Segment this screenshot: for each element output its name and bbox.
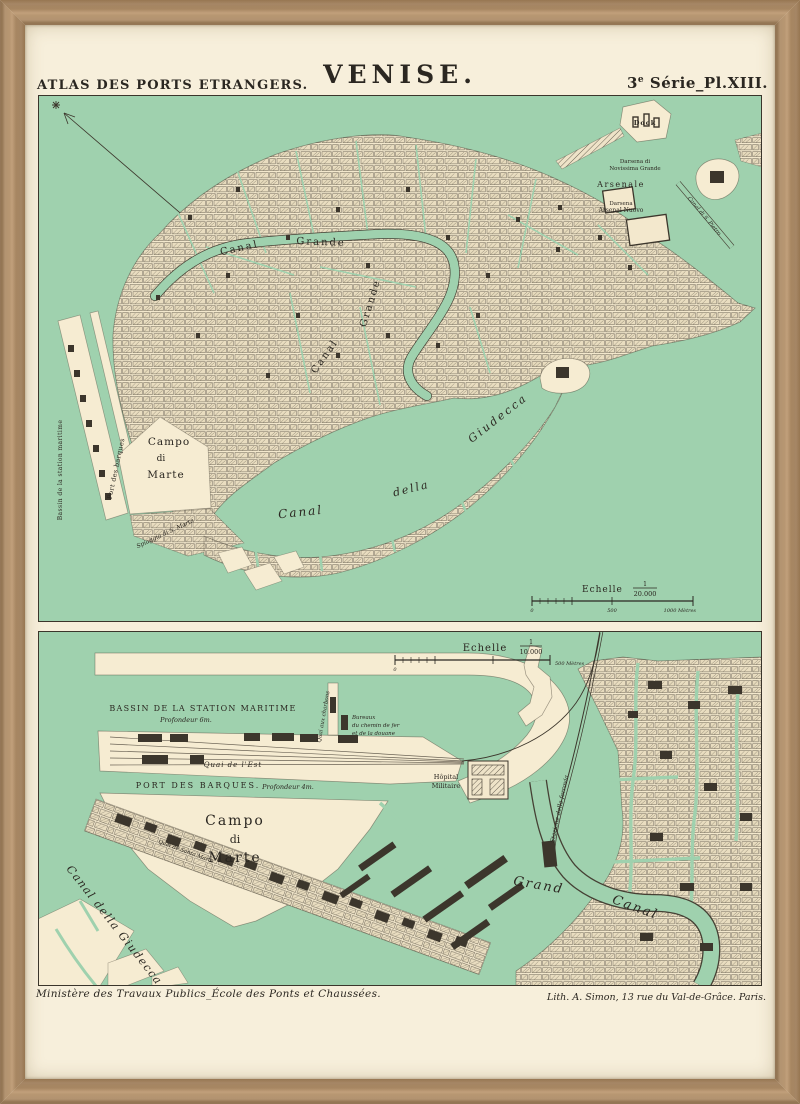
scale-numerator: 1 — [643, 581, 647, 588]
plate-number-rest: Série_Pl.XIII. — [644, 74, 768, 92]
label-prof6: Profondeur 6m. — [159, 716, 212, 724]
label-dock: Dock — [634, 119, 656, 127]
label-campo-marte: Marte — [147, 469, 184, 481]
label-campo2-marte: Marte — [208, 850, 261, 866]
label-hopital-1: Hôpital — [434, 773, 458, 781]
lithographer-credit: Lith. A. Simon, 13 rue du Val-de-Grâce. … — [547, 992, 766, 1003]
label-campo-di: di — [157, 454, 166, 464]
frame-left — [0, 0, 25, 1104]
label-arsenale: Arsenale — [596, 180, 645, 189]
scale-tick-500: 500 — [607, 608, 617, 614]
label-hopital-2: Militaire — [432, 782, 461, 790]
label-bureaux-2: du chemin de fer — [352, 723, 400, 729]
port-detail-map: BASSIN DE LA STATION MARITIME Profondeur… — [38, 631, 762, 986]
label-campo: Campo — [148, 436, 190, 448]
framed-map-poster: ATLAS DES PORTS ETRANGERS. VENISE. 3e Sé… — [0, 0, 800, 1104]
frame-right — [775, 0, 800, 1104]
label-darsena-nuovo-2: Arsenal Nuovo — [598, 207, 644, 214]
scale2-word: Echelle — [463, 643, 508, 654]
label-quai-est: Quai de l'Est — [204, 761, 262, 769]
publisher-credit: Ministère des Travaux Publics_École des … — [36, 988, 381, 1000]
station-building — [542, 840, 558, 867]
label-darsena-novissima-1: Darsena di — [620, 159, 650, 165]
label-darsena-novissima-2: Novissima Grande — [609, 166, 660, 172]
plate-number-prefix: 3 — [627, 74, 638, 92]
scale-tick-1000m: 1000 Mètres — [664, 607, 697, 614]
scale2-tick-500m: 500 Mètres — [555, 660, 585, 667]
frame-bottom — [0, 1079, 800, 1104]
label-bassin-station: Bassin de la station maritime — [57, 420, 64, 521]
military-hospital — [468, 761, 508, 799]
label-bureaux-1: Bureaux — [351, 715, 376, 721]
label-bureaux-3: et de la douane — [352, 731, 396, 737]
label-campo2-di: di — [230, 833, 241, 846]
label-canal-grande-1b: Grande — [296, 236, 346, 249]
scale-word: Echelle — [582, 585, 623, 595]
label-campo2: Campo — [205, 813, 265, 829]
scale-denominator: 20.000 — [634, 590, 657, 598]
plate-number: 3e Série_Pl.XIII. — [627, 74, 768, 92]
label-prof4: Profondeur 4m. — [261, 783, 314, 791]
scale2-denominator: 10.000 — [520, 648, 543, 656]
label-port-barques: PORT DES BARQUES. — [136, 781, 261, 790]
frame-top — [0, 0, 800, 25]
scale2-numerator: 1 — [529, 639, 533, 646]
venice-overview-map: Canal Grande Canal Grande Canal della Gi… — [38, 95, 762, 622]
label-bassin: BASSIN DE LA STATION MARITIME — [109, 704, 296, 713]
